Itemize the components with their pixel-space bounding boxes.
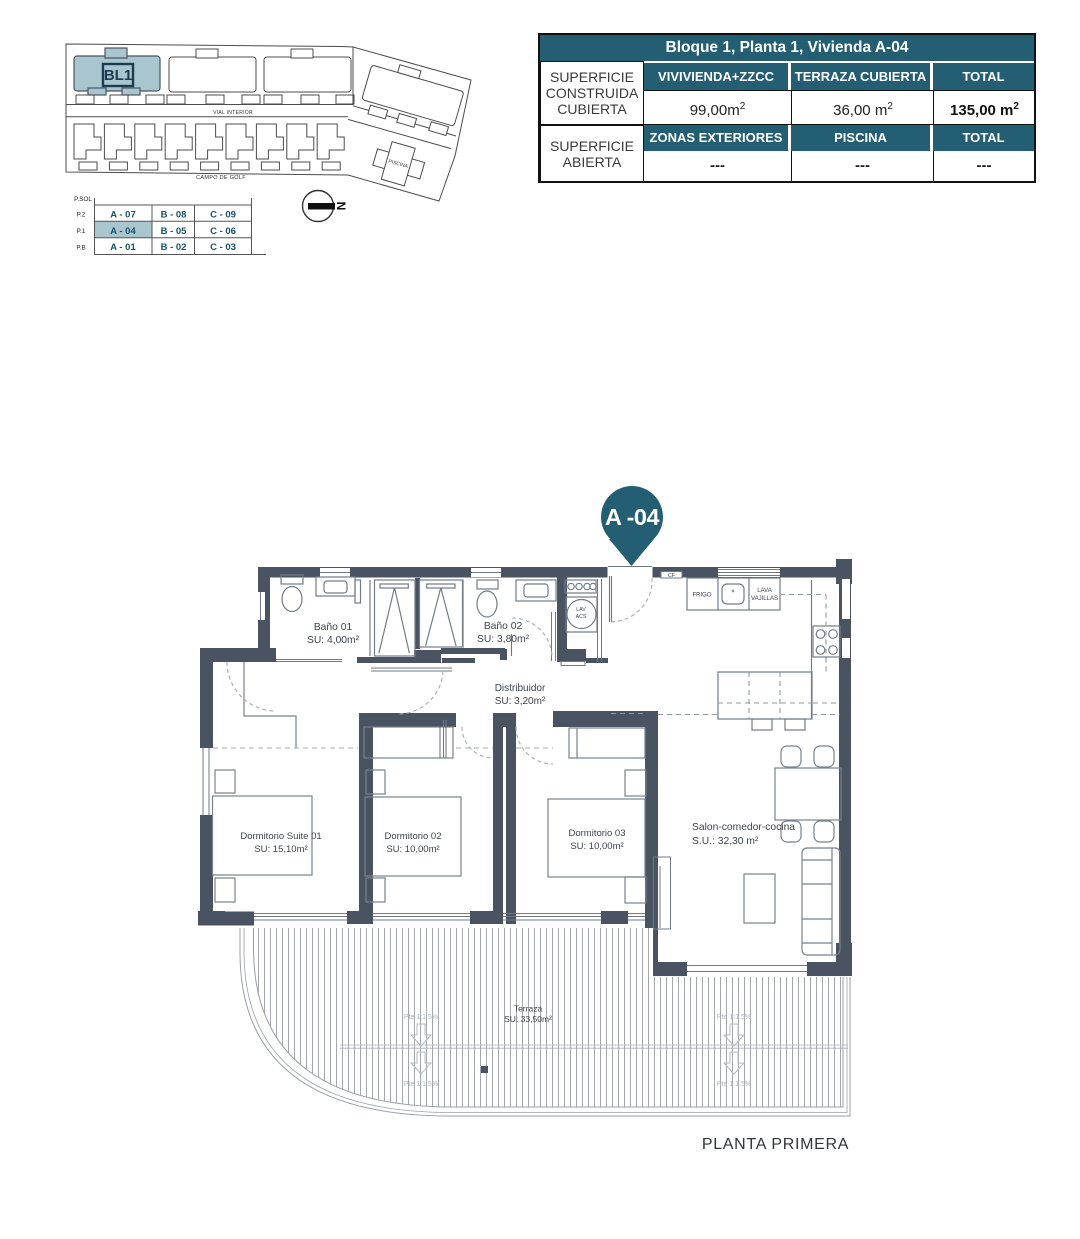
svg-text:A - 07: A - 07 <box>110 210 136 221</box>
svg-text:B - 08: B - 08 <box>161 210 187 221</box>
svg-text:Baño 02: Baño 02 <box>484 621 523 632</box>
svg-text:Salon-comedor-cocina: Salon-comedor-cocina <box>692 822 795 833</box>
svg-text:ACS: ACS <box>576 614 587 620</box>
svg-text:Dormitorio 03: Dormitorio 03 <box>568 828 625 839</box>
svg-text:Pte 1:1.5%: Pte 1:1.5% <box>404 1081 438 1088</box>
svg-text:P.2: P.2 <box>77 212 86 219</box>
svg-text:SU: 15,10m²: SU: 15,10m² <box>254 844 307 855</box>
svg-text:B - 02: B - 02 <box>161 242 187 253</box>
svg-text:Pte 1:1.5%: Pte 1:1.5% <box>717 1081 751 1088</box>
svg-text:C - 09: C - 09 <box>210 210 236 221</box>
svg-text:CAMPO DE GOLF: CAMPO DE GOLF <box>196 175 246 181</box>
svg-text:SU: 33,50m²: SU: 33,50m² <box>504 1014 552 1024</box>
svg-text:C - 06: C - 06 <box>210 226 236 237</box>
svg-text:Dormitorio 02: Dormitorio 02 <box>384 831 441 842</box>
svg-text:CF: CF <box>668 573 676 579</box>
svg-text:S.U.: 32,30 m²: S.U.: 32,30 m² <box>692 836 759 847</box>
svg-text:P.B: P.B <box>76 245 85 252</box>
svg-text:BL1: BL1 <box>104 67 132 84</box>
svg-text:Baño 01: Baño 01 <box>314 622 353 633</box>
svg-text:LAVA: LAVA <box>757 588 771 594</box>
svg-text:B - 05: B - 05 <box>161 226 188 237</box>
svg-text:A - 04: A - 04 <box>110 226 136 237</box>
svg-text:P.1: P.1 <box>77 228 86 235</box>
svg-text:LAV: LAV <box>576 607 586 613</box>
svg-text:A -04: A -04 <box>605 504 660 530</box>
svg-text:SU: 10,00m²: SU: 10,00m² <box>386 844 439 855</box>
svg-text:SU: 4,00m²: SU: 4,00m² <box>307 635 360 646</box>
svg-text:A - 01: A - 01 <box>110 242 136 253</box>
svg-text:VAJILLAS: VAJILLAS <box>751 596 778 602</box>
svg-text:N: N <box>334 202 348 211</box>
svg-text:VIAL INTERIOR: VIAL INTERIOR <box>213 110 253 116</box>
svg-text:SU: 3,80m²: SU: 3,80m² <box>477 634 530 645</box>
svg-text:Dormitorio Suite 01: Dormitorio Suite 01 <box>240 831 321 842</box>
svg-text:C - 03: C - 03 <box>210 242 236 253</box>
svg-text:P.SOL: P.SOL <box>74 196 92 203</box>
svg-text:SU: 3,20m²: SU: 3,20m² <box>495 696 546 707</box>
svg-text:Pte 1:1.5%: Pte 1:1.5% <box>717 1014 751 1021</box>
svg-text:FRIGO: FRIGO <box>693 593 712 599</box>
svg-text:Distribuidor: Distribuidor <box>495 683 546 694</box>
svg-text:Terraza: Terraza <box>514 1004 543 1014</box>
svg-text:PLANTA PRIMERA: PLANTA PRIMERA <box>702 1136 849 1153</box>
svg-text:Pte 1:1.5%: Pte 1:1.5% <box>404 1014 438 1021</box>
svg-text:SU: 10,00m²: SU: 10,00m² <box>570 841 623 852</box>
